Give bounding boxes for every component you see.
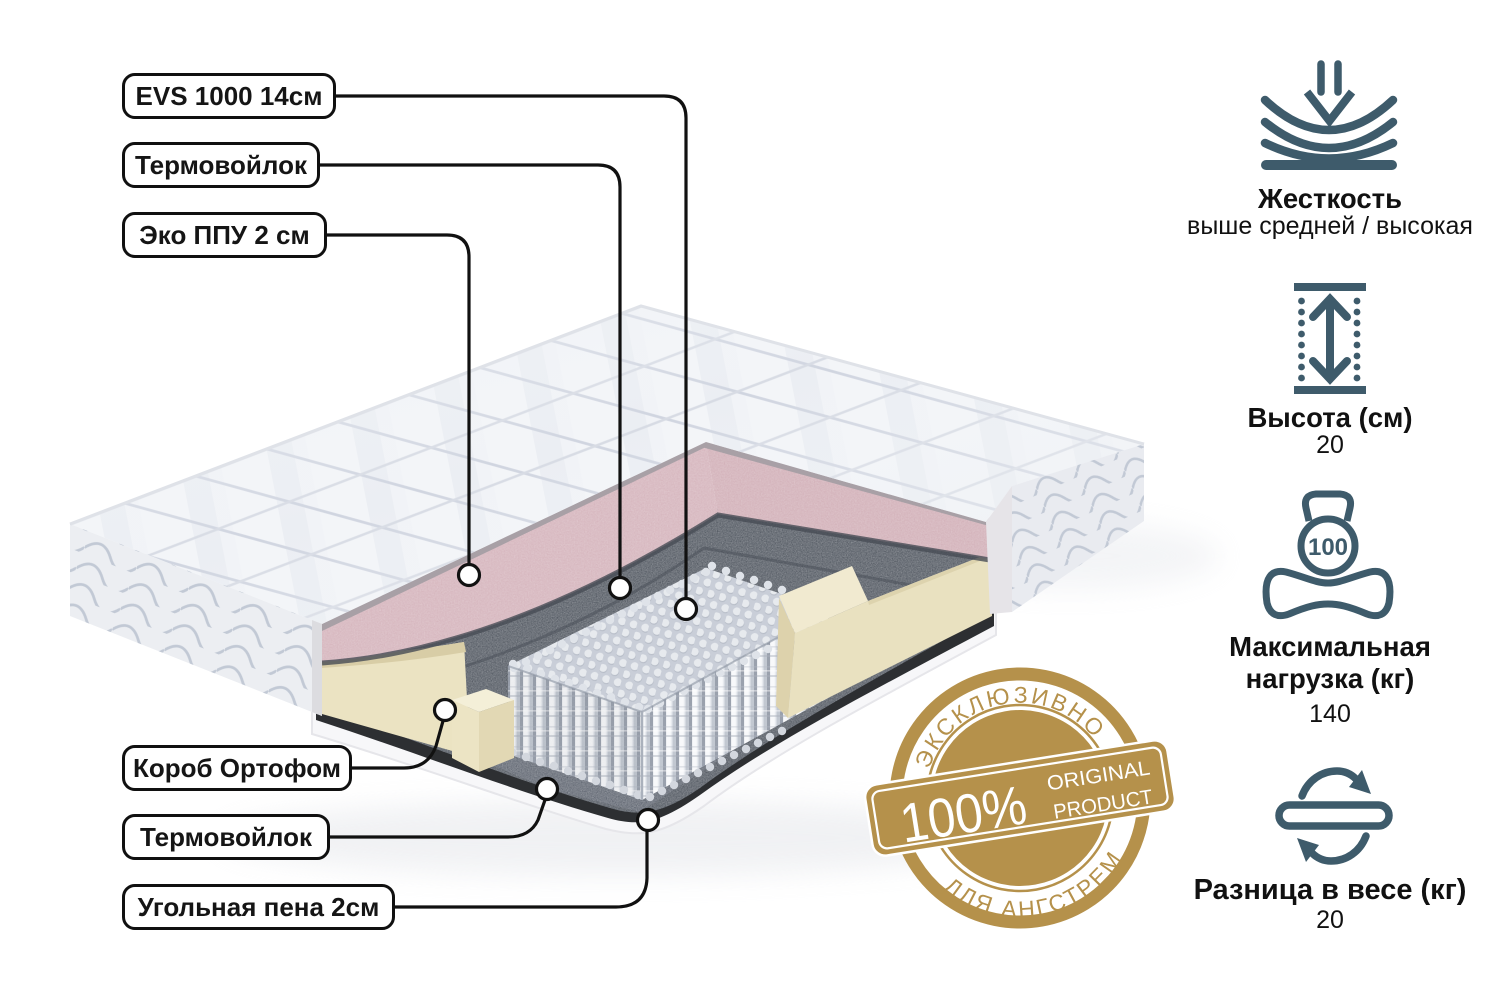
svg-text:100: 100 [1308, 534, 1348, 561]
